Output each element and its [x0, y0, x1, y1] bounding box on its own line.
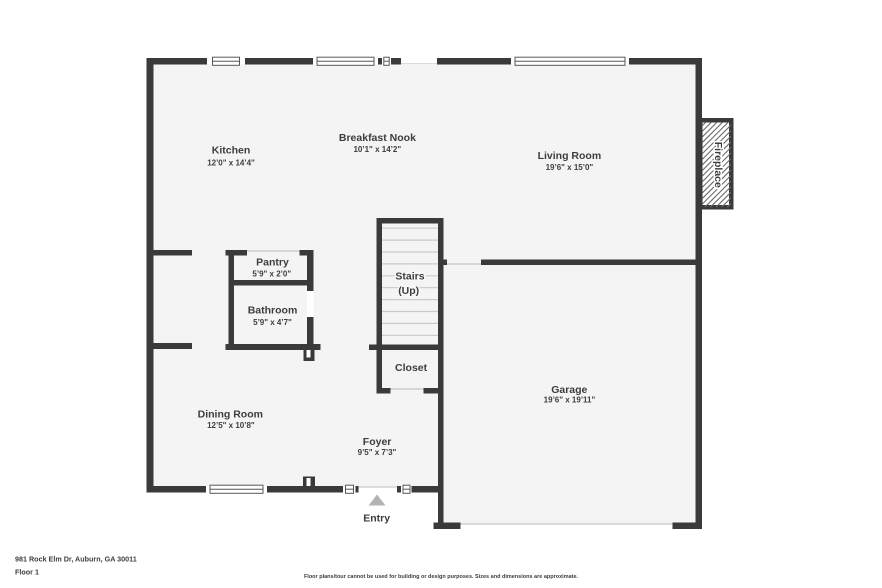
svg-text:9’5" x 7’3": 9’5" x 7’3" — [358, 448, 397, 457]
svg-text:5’9" x 2’0": 5’9" x 2’0" — [252, 270, 291, 279]
svg-text:(Up): (Up) — [398, 285, 419, 297]
svg-text:12’5" x 10’8": 12’5" x 10’8" — [207, 421, 255, 430]
svg-text:Garage: Garage — [551, 384, 587, 396]
svg-text:981 Rock Elm Dr, Auburn, GA 30: 981 Rock Elm Dr, Auburn, GA 30011 — [15, 555, 137, 564]
svg-text:Dining Room: Dining Room — [198, 409, 263, 421]
svg-text:Breakfast Nook: Breakfast Nook — [339, 132, 416, 144]
svg-text:Closet: Closet — [395, 362, 428, 374]
svg-text:Stairs: Stairs — [395, 271, 424, 283]
svg-text:Fireplace: Fireplace — [712, 142, 724, 188]
svg-text:Foyer: Foyer — [363, 436, 392, 448]
svg-text:Bathroom: Bathroom — [248, 305, 298, 317]
svg-text:Entry: Entry — [363, 513, 390, 525]
svg-text:12’0" x 14’4": 12’0" x 14’4" — [207, 158, 255, 167]
svg-text:19’6" x 15’0": 19’6" x 15’0" — [546, 163, 594, 172]
svg-text:19’6" x 19’11": 19’6" x 19’11" — [544, 395, 596, 404]
svg-text:Floor plans/tour cannot be use: Floor plans/tour cannot be used for buil… — [304, 574, 579, 580]
svg-text:Pantry: Pantry — [256, 256, 289, 268]
svg-text:10’1" x 14’2": 10’1" x 14’2" — [353, 145, 401, 154]
svg-text:Floor 1: Floor 1 — [15, 568, 39, 577]
svg-text:Kitchen: Kitchen — [212, 144, 251, 156]
svg-text:5’9" x 4’7": 5’9" x 4’7" — [253, 318, 292, 327]
svg-text:Living Room: Living Room — [538, 150, 602, 162]
